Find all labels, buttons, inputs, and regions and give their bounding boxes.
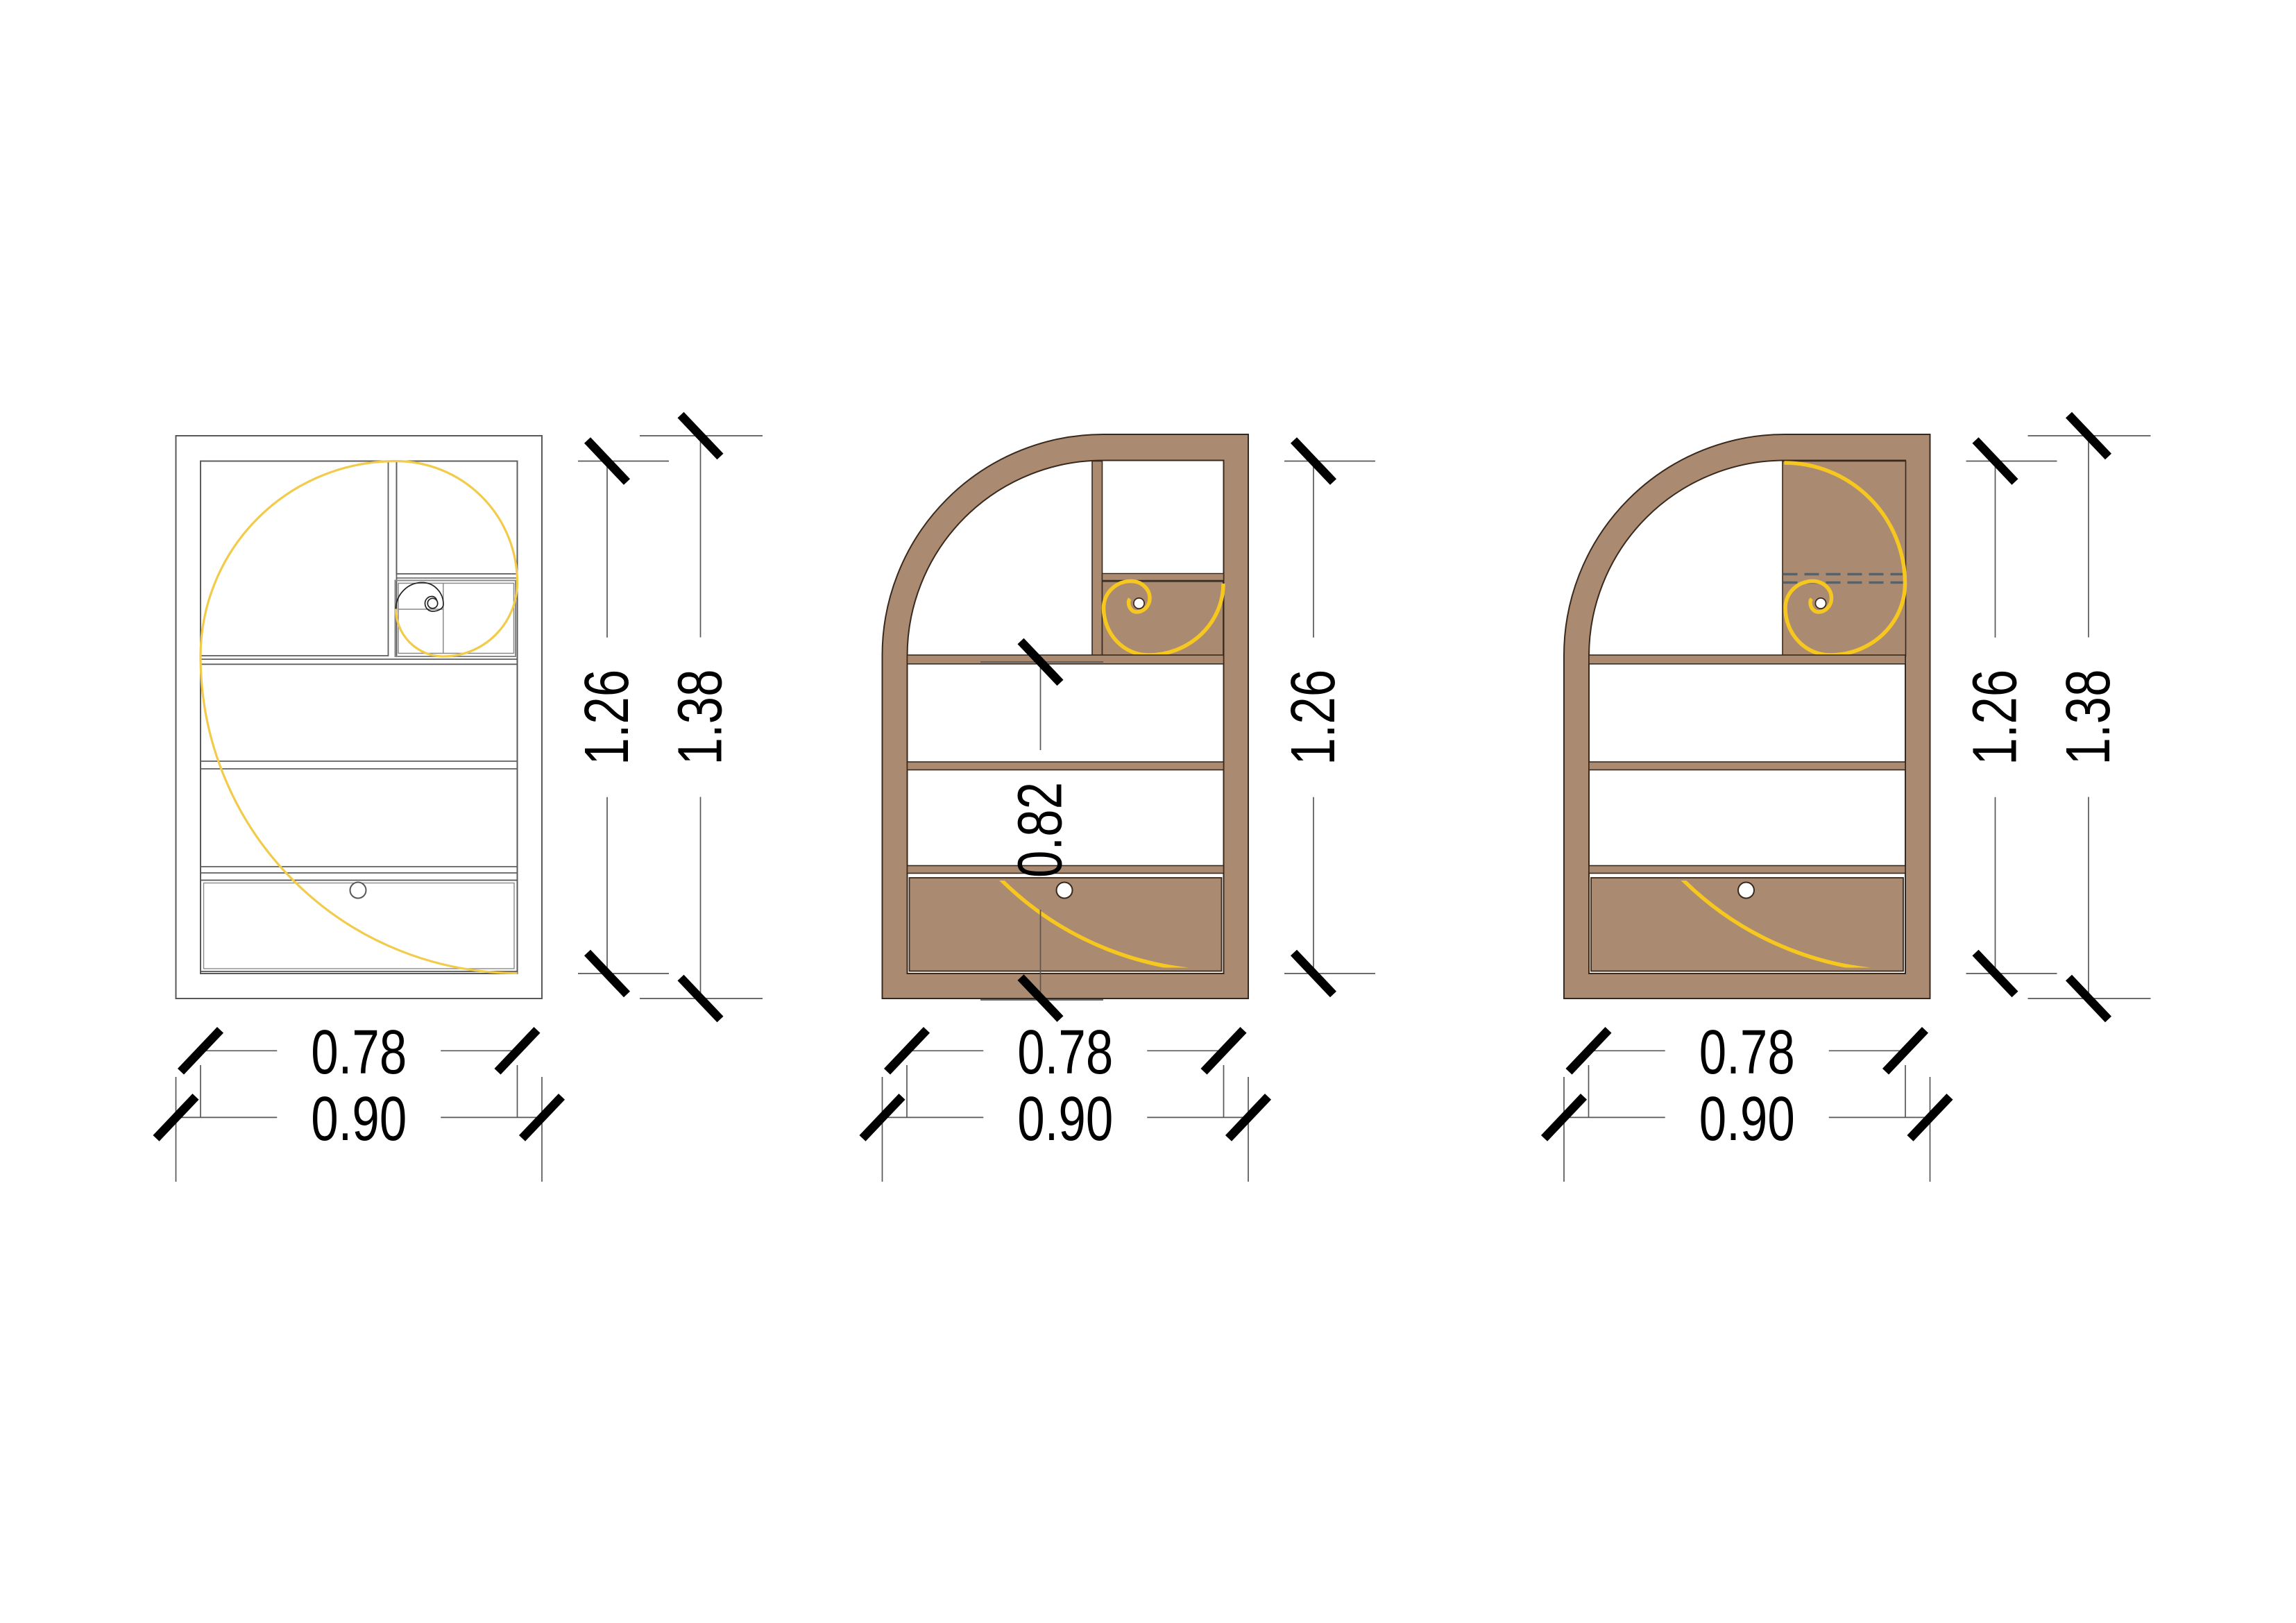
svg-text:1.26: 1.26 [572,670,642,765]
svg-text:0.78: 0.78 [311,1018,407,1087]
svg-text:1.38: 1.38 [2054,670,2123,765]
svg-text:0.90: 0.90 [1017,1085,1113,1154]
svg-text:1.26: 1.26 [1279,670,1348,765]
svg-text:0.78: 0.78 [1017,1018,1113,1087]
svg-text:0.90: 0.90 [1699,1085,1795,1154]
svg-text:1.26: 1.26 [1961,670,2030,765]
svg-text:0.82: 0.82 [1006,782,1075,878]
svg-text:0.78: 0.78 [1699,1018,1795,1087]
svg-text:1.38: 1.38 [666,670,735,765]
svg-text:0.90: 0.90 [311,1085,407,1154]
